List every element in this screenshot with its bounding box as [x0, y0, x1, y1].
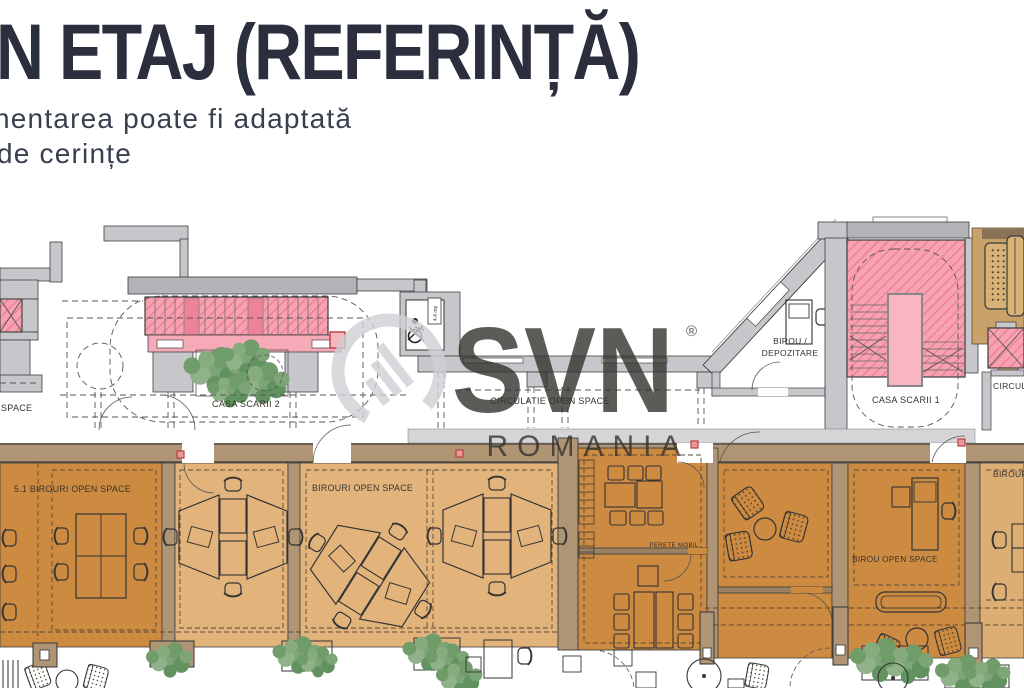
label-birou-depozitare-1: BIROU / — [773, 336, 807, 346]
label-birouri-open-space: BIROURI OPEN SPACE — [312, 483, 413, 493]
label-space-partial: SPACE — [1, 403, 32, 413]
label-birou-depozitare-2: DEPOZITARE — [762, 348, 819, 358]
watermark-brand: SVN — [452, 302, 674, 438]
page-title: N ETAJ (REFERINȚĂ) — [0, 6, 639, 98]
svn-watermark: SVN ® ROMANIA — [321, 302, 697, 463]
elevator-right — [988, 322, 1024, 375]
watermark-region: ROMANIA — [486, 430, 689, 463]
staircase-2 — [145, 297, 341, 352]
page-subtitle-line1: nentarea poate fi adaptată — [0, 103, 352, 135]
label-birouri-51: 5.1 BIROURI OPEN SPACE — [14, 484, 131, 494]
page-subtitle-line2: de cerințe — [0, 138, 132, 170]
label-birou-open-space: BIROU OPEN SPACE — [852, 555, 938, 564]
floor-plan-page: 4.4 mp — [0, 0, 1024, 688]
label-casa-scarii-2: CASA SCARII 2 — [212, 399, 280, 409]
circulatie-room-right — [982, 370, 1024, 430]
lift-label: 4.4 mp — [433, 305, 439, 321]
watermark-registered: ® — [686, 323, 697, 340]
label-birouri-right: BIROURI OPEN SPACE — [993, 469, 1024, 479]
label-perete-mobil: PERETE MOBIL — [649, 542, 699, 549]
elevator-left — [0, 299, 22, 332]
label-circulatie-right: CIRCULATIE — [993, 381, 1024, 391]
left-door-arcs — [99, 395, 195, 430]
label-casa-scarii-1: CASA SCARII 1 — [872, 395, 940, 405]
